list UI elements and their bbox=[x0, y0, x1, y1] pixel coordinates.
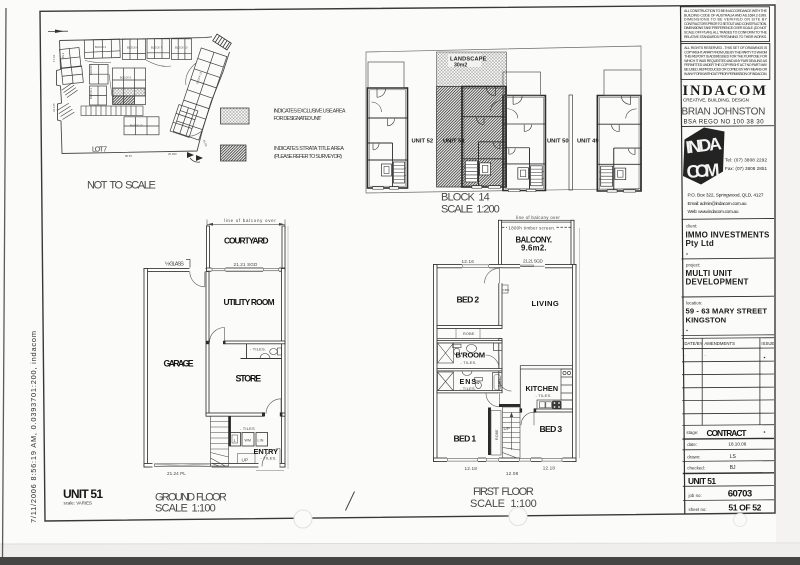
svg-text:BED 1: BED 1 bbox=[454, 434, 477, 444]
svg-text:BLOCK 7: BLOCK 7 bbox=[151, 46, 163, 50]
svg-text:INDICATES STRATA TITLE AREA: INDICATES STRATA TITLE AREA bbox=[274, 146, 344, 152]
svg-text:(PLEASE REFER TO SURVEYOR): (PLEASE REFER TO SURVEYOR) bbox=[274, 154, 342, 160]
svg-text:DATE/BY: DATE/BY bbox=[684, 341, 702, 346]
svg-text:CBD: CBD bbox=[503, 288, 511, 292]
svg-text:BED 2: BED 2 bbox=[457, 295, 480, 305]
svg-text:UNIT 51: UNIT 51 bbox=[63, 487, 103, 501]
svg-text:SCALE 1:200: SCALE 1:200 bbox=[441, 204, 501, 216]
svg-text:LOT 7: LOT 7 bbox=[92, 147, 107, 154]
svg-text:12.16: 12.16 bbox=[462, 259, 475, 264]
svg-text:RELATIVE STANDARDS PERTAINING: RELATIVE STANDARDS PERTAINING TO THEIR W… bbox=[684, 35, 767, 39]
svg-text:UNIT 51: UNIT 51 bbox=[688, 476, 716, 486]
svg-text:AMENDMENTS: AMENDMENTS bbox=[704, 341, 735, 346]
svg-text:LIVING: LIVING bbox=[532, 299, 560, 308]
svg-text:- TILES.: - TILES. bbox=[536, 393, 552, 398]
svg-text:30m2: 30m2 bbox=[454, 63, 467, 69]
svg-text:UNIT 50: UNIT 50 bbox=[547, 139, 569, 145]
svg-text:BLOCK 1: BLOCK 1 bbox=[89, 87, 93, 99]
svg-text:½ GLASS: ½ GLASS bbox=[165, 260, 184, 267]
svg-text:- TILES.: - TILES. bbox=[461, 360, 477, 365]
svg-text:INDICATES EXCLUSIVE USE AREA: INDICATES EXCLUSIVE USE AREA bbox=[274, 109, 346, 115]
svg-text:drawn:: drawn: bbox=[687, 455, 700, 460]
svg-text:ROBE: ROBE bbox=[463, 332, 475, 336]
svg-text:IN ANY FORM WITHOUT PRIOR PERM: IN ANY FORM WITHOUT PRIOR PERMISSION OF … bbox=[684, 72, 767, 76]
svg-text:Web: www.indacom.com.au: Web: www.indacom.com.au bbox=[688, 209, 739, 215]
svg-text:KINGSTON: KINGSTON bbox=[686, 315, 727, 324]
svg-text:25.909: 25.909 bbox=[168, 152, 177, 156]
svg-text:60703: 60703 bbox=[728, 489, 753, 500]
svg-text:- TILES: - TILES bbox=[240, 426, 255, 431]
svg-text:Fax: (07) 3808 2851: Fax: (07) 3808 2851 bbox=[725, 166, 767, 171]
svg-text:34.145: 34.145 bbox=[52, 103, 56, 112]
svg-text:BL 2: BL 2 bbox=[61, 52, 65, 58]
svg-text:scale: VARIES: scale: VARIES bbox=[64, 501, 93, 506]
svg-text:BLOCK 13: BLOCK 13 bbox=[130, 124, 143, 128]
svg-text:UP: UP bbox=[242, 457, 249, 462]
svg-text:ROBE: ROBE bbox=[495, 429, 499, 440]
svg-text:- TILES.: - TILES. bbox=[460, 386, 476, 391]
svg-text:SCALE 1:100: SCALE 1:100 bbox=[155, 503, 217, 515]
svg-text:BSA REGO NO 100 38 30: BSA REGO NO 100 38 30 bbox=[684, 120, 765, 126]
svg-text:CONTRACT: CONTRACT bbox=[707, 428, 748, 438]
svg-text:.: . bbox=[685, 352, 686, 357]
svg-text:COM: COM bbox=[686, 160, 720, 182]
svg-text:12.08: 12.08 bbox=[506, 471, 519, 476]
svg-text:IMMO INVESTMENTS: IMMO INVESTMENTS bbox=[686, 231, 771, 240]
svg-text:sheet no:: sheet no: bbox=[689, 507, 707, 512]
svg-text:FIRST FLOOR: FIRST FLOOR bbox=[473, 486, 535, 498]
svg-text:UTILITY ROOM: UTILITY ROOM bbox=[224, 297, 276, 307]
svg-text:ENS.: ENS. bbox=[460, 377, 480, 386]
svg-text:LS: LS bbox=[730, 454, 737, 460]
svg-text:18.10.06: 18.10.06 bbox=[728, 442, 746, 447]
svg-text:location:: location: bbox=[686, 300, 702, 305]
svg-text:NOT TO SCALE: NOT TO SCALE bbox=[87, 180, 157, 192]
svg-text:INDACOM: INDACOM bbox=[683, 83, 769, 99]
svg-text:BLOCK 9: BLOCK 9 bbox=[120, 76, 132, 80]
svg-text:BED 3: BED 3 bbox=[540, 424, 563, 434]
svg-text:BRIAN JOHNSTON: BRIAN JOHNSTON bbox=[682, 107, 767, 118]
svg-text:12.18: 12.18 bbox=[465, 466, 478, 471]
svg-text:21.21 SGD: 21.21 SGD bbox=[523, 258, 543, 263]
svg-text:GARAGE: GARAGE bbox=[164, 359, 195, 369]
svg-text:COURTYARD: COURTYARD bbox=[224, 236, 269, 246]
svg-text:P.O. Box 322, Springwood, QLD,: P.O. Box 322, Springwood, QLD, 4127 bbox=[688, 193, 764, 199]
svg-text:- TILES.: - TILES. bbox=[261, 455, 277, 460]
svg-text:BLOCK 4: BLOCK 4 bbox=[95, 45, 107, 49]
svg-text:SCALE 1:100: SCALE 1:100 bbox=[470, 498, 538, 510]
svg-text:job no:: job no: bbox=[688, 493, 702, 498]
svg-text:ISSUE: ISSUE bbox=[761, 341, 774, 346]
svg-text:Email: admin@indacom.com.au: Email: admin@indacom.com.au bbox=[688, 201, 747, 207]
svg-text:.: . bbox=[685, 359, 686, 364]
svg-text:DEVELOPMENT: DEVELOPMENT bbox=[686, 278, 749, 287]
svg-text:MULTI UNIT: MULTI UNIT bbox=[686, 269, 733, 278]
svg-text:21.21 SGD: 21.21 SGD bbox=[234, 262, 258, 267]
svg-text:STORE: STORE bbox=[236, 374, 262, 384]
svg-text:9.6m2.: 9.6m2. bbox=[521, 244, 547, 253]
svg-text:B'ROOM: B'ROOM bbox=[456, 351, 486, 360]
svg-text:line of balcony over: line of balcony over bbox=[224, 218, 276, 223]
svg-text:LIN: LIN bbox=[258, 439, 264, 443]
svg-text:project:: project: bbox=[686, 263, 700, 268]
svg-text:86.87: 86.87 bbox=[125, 154, 132, 158]
svg-text:21.24 PL: 21.24 PL bbox=[167, 471, 186, 476]
svg-text:UNIT 49: UNIT 49 bbox=[577, 139, 599, 145]
svg-text:1800h timber screen.: 1800h timber screen. bbox=[509, 225, 556, 230]
svg-text:UNIT 52: UNIT 52 bbox=[412, 139, 434, 145]
svg-text:UNIT 51: UNIT 51 bbox=[443, 139, 465, 145]
svg-text:date:: date: bbox=[687, 442, 697, 447]
svg-text:BJ: BJ bbox=[730, 465, 736, 471]
svg-text:checked:: checked: bbox=[687, 466, 705, 471]
svg-text:FOR DESIGNATED UNIT: FOR DESIGNATED UNIT bbox=[274, 116, 323, 122]
svg-text:59 - 63 MARY STREET: 59 - 63 MARY STREET bbox=[686, 306, 768, 315]
svg-text:CREATIVE, BUILDING, DESIGN: CREATIVE, BUILDING, DESIGN bbox=[683, 98, 749, 103]
svg-text:WM: WM bbox=[245, 439, 252, 443]
svg-text:BLOCK 3: BLOCK 3 bbox=[89, 63, 93, 75]
svg-text:stage:: stage: bbox=[686, 430, 698, 435]
svg-text:- TILES.: - TILES. bbox=[250, 347, 266, 352]
svg-text:51 OF 52: 51 OF 52 bbox=[728, 502, 761, 512]
svg-text:12.18: 12.18 bbox=[543, 465, 556, 470]
svg-text:KITCHEN: KITCHEN bbox=[526, 384, 559, 393]
svg-text:BLOCK 6: BLOCK 6 bbox=[127, 46, 139, 50]
svg-text:17.34: 17.34 bbox=[52, 55, 56, 62]
svg-text:client:: client: bbox=[686, 224, 697, 229]
svg-text:Tel: (07) 3808 2292: Tel: (07) 3808 2292 bbox=[725, 158, 767, 163]
svg-text:Pty Ltd: Pty Ltd bbox=[686, 239, 715, 248]
svg-text:line of balcony over: line of balcony over bbox=[516, 215, 560, 220]
svg-text:UP: UP bbox=[504, 426, 511, 431]
svg-text:7/11/2006 8:56:19 AM, 0.039370: 7/11/2006 8:56:19 AM, 0.0393701:200, ind… bbox=[29, 331, 38, 523]
svg-text:BLOCK 10: BLOCK 10 bbox=[175, 46, 188, 50]
svg-text:BLOCK 14: BLOCK 14 bbox=[441, 192, 491, 204]
